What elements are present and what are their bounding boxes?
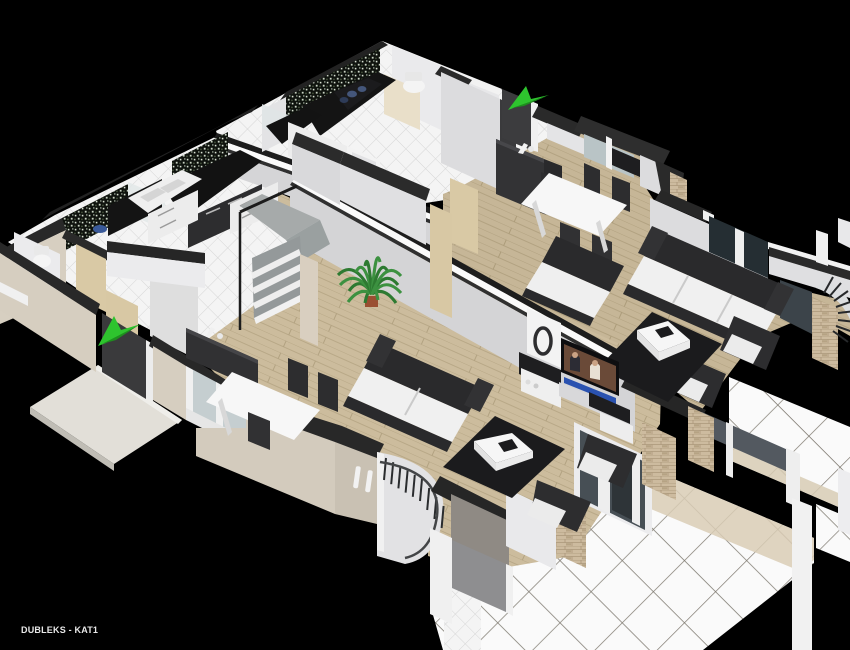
svg-text:DUBLEKS - KAT1: DUBLEKS - KAT1	[21, 625, 98, 635]
